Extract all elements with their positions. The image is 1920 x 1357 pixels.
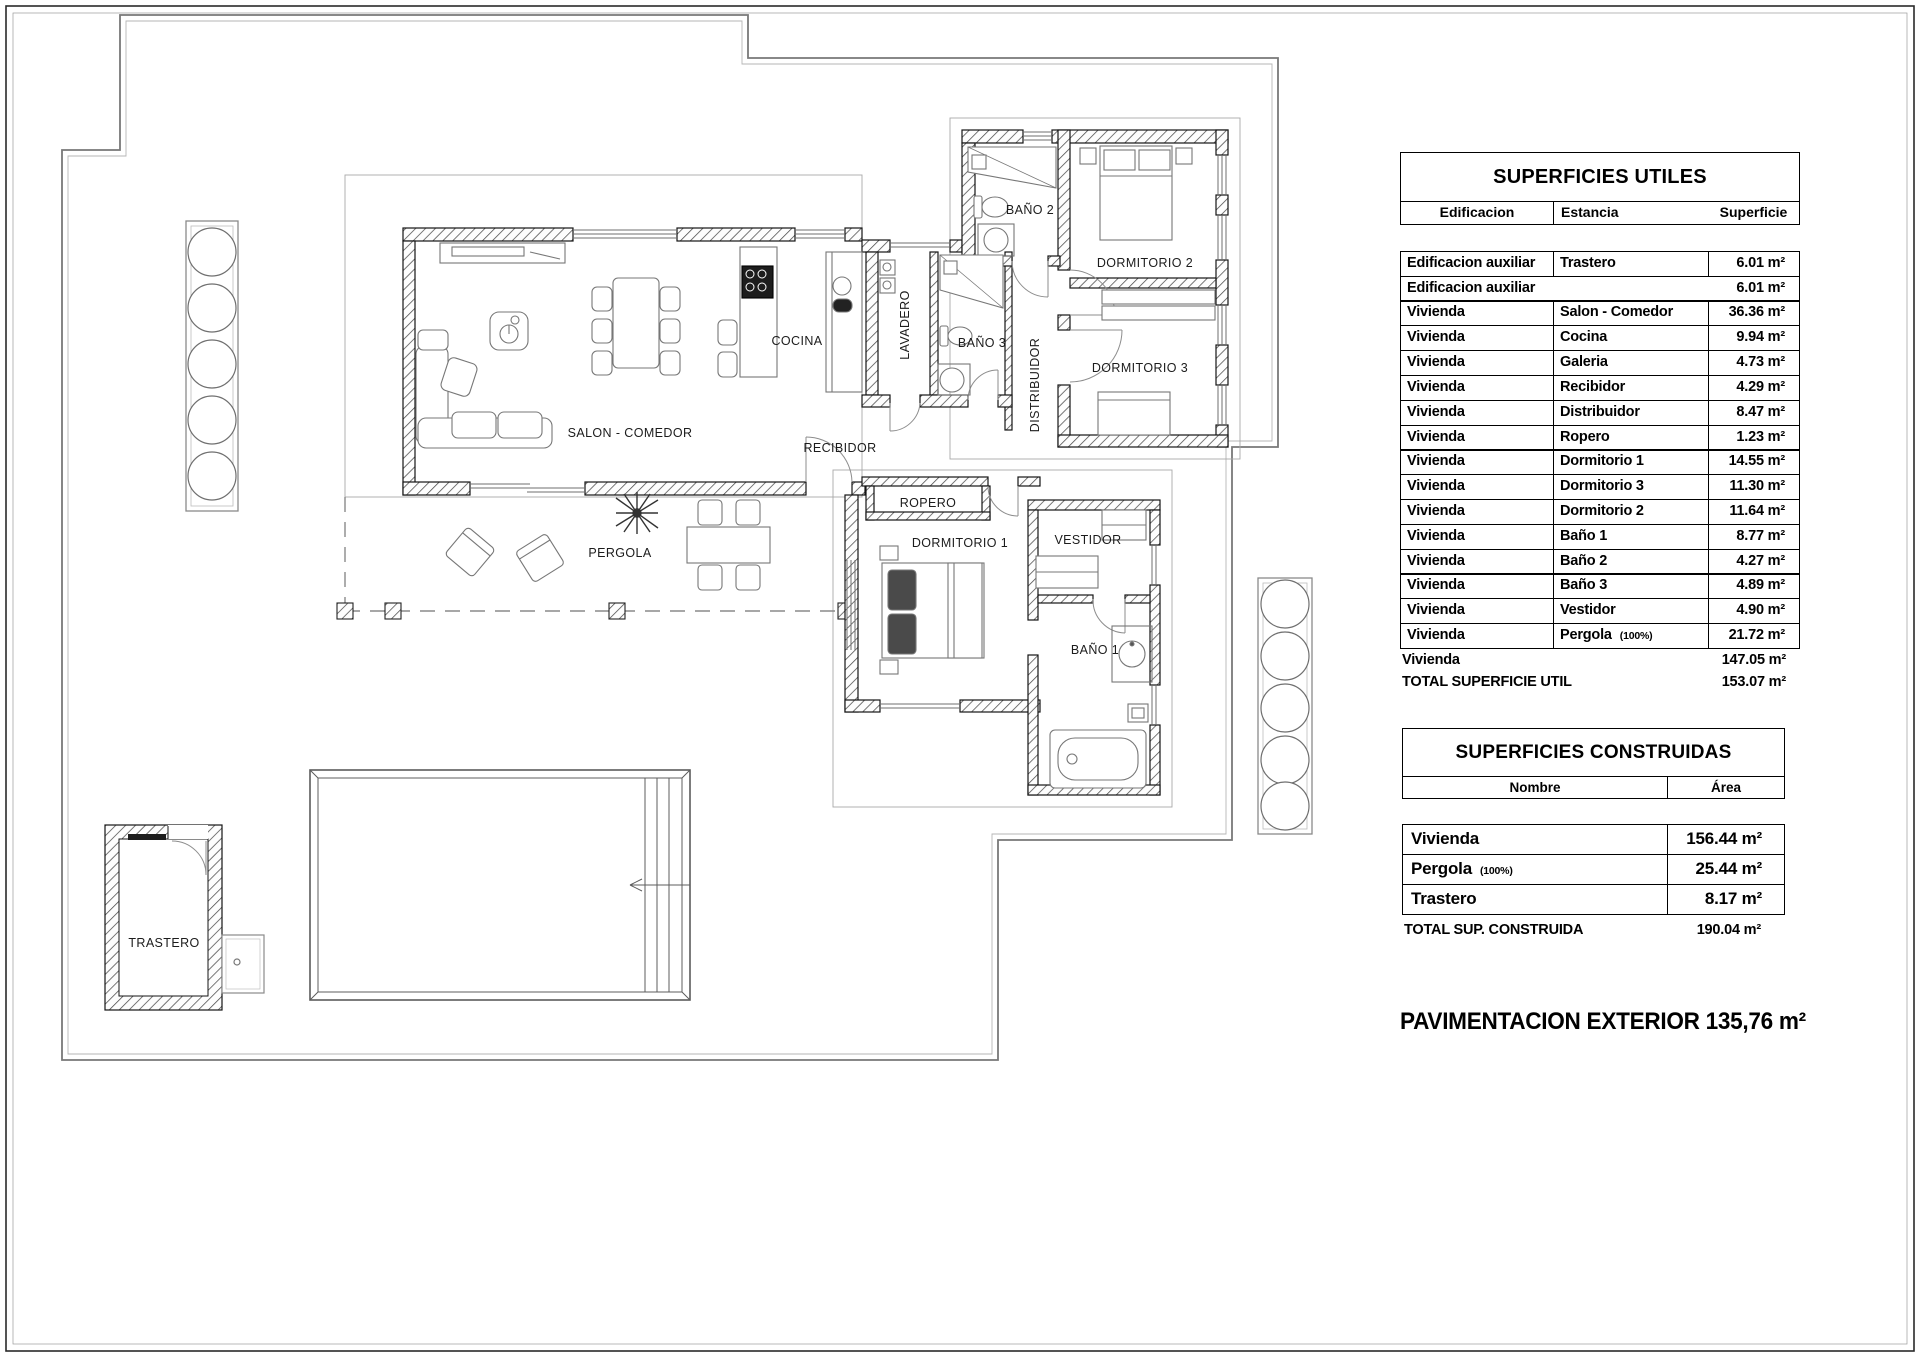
table-row: ViviendaRecibidor4.29 m²	[1400, 375, 1800, 401]
planter-left	[186, 221, 238, 511]
lounge-chair-2	[515, 533, 565, 583]
table-row: ViviendaDormitorio 311.30 m²	[1400, 474, 1800, 500]
label-recibidor: RECIBIDOR	[803, 441, 876, 455]
pool-arrow	[630, 879, 690, 891]
bathroom3-fixtures	[938, 255, 1003, 395]
label-vestidor: VESTIDOR	[1054, 533, 1121, 547]
total-label: TOTAL SUP. CONSTRUIDA	[1402, 918, 1697, 942]
utiles-rows: Edificacion auxiliarTrastero6.01 m²Edifi…	[1400, 251, 1800, 649]
label-ropero: ROPERO	[900, 496, 957, 510]
closet-strip	[1102, 290, 1215, 320]
total-value: 190.04 m²	[1697, 918, 1785, 942]
table-row: Vivienda156.44 m²	[1403, 825, 1784, 854]
vestidor-closets	[1036, 510, 1146, 588]
table-row: ViviendaGaleria4.73 m²	[1400, 350, 1800, 376]
label-trastero: TRASTERO	[128, 936, 199, 950]
label-salon: SALON - COMEDOR	[568, 426, 693, 440]
plant	[616, 492, 658, 534]
bed-dorm3	[1098, 392, 1170, 435]
dining-table	[592, 278, 680, 375]
utiles-title: SUPERFICIES UTILES	[1400, 152, 1800, 202]
superficies-construidas-table: SUPERFICIES CONSTRUIDAS Nombre Área Vivi…	[1402, 728, 1785, 942]
kitchen-counter	[826, 252, 862, 392]
label-dormitorio2: DORMITORIO 2	[1097, 256, 1193, 270]
table-row: ViviendaBaño 24.27 m²	[1400, 549, 1800, 575]
table-row: ViviendaVestidor4.90 m²	[1400, 598, 1800, 624]
label-dormitorio1: DORMITORIO 1	[912, 536, 1008, 550]
col-edificacion: Edificacion	[1401, 202, 1553, 224]
table-row: ViviendaDormitorio 114.55 m²	[1400, 449, 1800, 475]
table-row: Edificacion auxiliar6.01 m²	[1400, 276, 1800, 302]
table-row: ViviendaBaño 34.89 m²	[1400, 573, 1800, 599]
table-row: Edificacion auxiliarTrastero6.01 m²	[1400, 251, 1800, 277]
trastero-annex	[222, 935, 264, 993]
label-pergola: PERGOLA	[588, 546, 651, 560]
sofa	[416, 330, 552, 448]
planter-right	[1258, 578, 1312, 834]
table-row: Trastero8.17 m²	[1403, 884, 1784, 914]
table-row: ViviendaDormitorio 211.64 m²	[1400, 499, 1800, 525]
table-row: ViviendaCocina9.94 m²	[1400, 325, 1800, 351]
utiles-summary: Vivienda147.05 m²TOTAL SUPERFICIE UTIL15…	[1400, 649, 1800, 693]
label-distribuidor: DISTRIBUIDOR	[1028, 338, 1042, 432]
construidas-header: Nombre Área	[1402, 777, 1785, 799]
label-dormitorio3: DORMITORIO 3	[1092, 361, 1188, 375]
construidas-title: SUPERFICIES CONSTRUIDAS	[1402, 728, 1785, 777]
table-row: ViviendaSalon - Comedor36.36 m²	[1400, 300, 1800, 326]
table-row: ViviendaDistribuidor8.47 m²	[1400, 400, 1800, 426]
tree-icon	[188, 228, 236, 500]
bed-dorm1	[880, 546, 984, 674]
table-row: ViviendaPergola(100%)21.72 m²	[1400, 623, 1800, 649]
tree-icon	[1261, 580, 1309, 830]
label-lavadero: LAVADERO	[898, 290, 912, 359]
outdoor-dining	[687, 500, 770, 590]
col-nombre: Nombre	[1403, 777, 1667, 798]
bed-dorm2	[1080, 146, 1192, 240]
furniture	[416, 146, 1215, 788]
sideboard	[440, 243, 565, 263]
label-bano2: BAÑO 2	[1006, 203, 1054, 217]
pool	[310, 770, 690, 1000]
stove-fireplace	[490, 312, 528, 350]
table-row: Pergola(100%)25.44 m²	[1403, 854, 1784, 884]
drawing-sheet: SALON - COMEDOR COCINA LAVADERO BAÑO 2 B…	[0, 0, 1920, 1357]
summary-row: Vivienda147.05 m²	[1400, 649, 1800, 671]
label-bano3: BAÑO 3	[958, 336, 1006, 350]
table-row: ViviendaBaño 18.77 m²	[1400, 524, 1800, 550]
exterior-paving-note: PAVIMENTACION EXTERIOR 135,76 m²	[1400, 1008, 1814, 1036]
col-area: Área	[1667, 777, 1784, 798]
construidas-total: TOTAL SUP. CONSTRUIDA 190.04 m²	[1402, 918, 1785, 942]
bathroom2-fixtures	[968, 147, 1056, 256]
lounge-chair-1	[445, 527, 496, 578]
utiles-header: Edificacion Estancia Superficie	[1400, 202, 1800, 225]
superficies-utiles-table: SUPERFICIES UTILES Edificacion Estancia …	[1400, 152, 1800, 693]
construidas-rows: Vivienda156.44 m²Pergola(100%)25.44 m²Tr…	[1402, 824, 1785, 915]
summary-row: TOTAL SUPERFICIE UTIL153.07 m²	[1400, 671, 1800, 693]
col-superficie: Superficie	[1708, 202, 1799, 224]
kitchen-island	[718, 247, 777, 377]
table-row: ViviendaRopero1.23 m²	[1400, 425, 1800, 451]
label-cocina: COCINA	[771, 334, 822, 348]
trastero-building	[105, 825, 264, 1010]
washer	[880, 260, 895, 293]
label-bano1: BAÑO 1	[1071, 643, 1119, 657]
col-estancia: Estancia	[1553, 202, 1708, 224]
